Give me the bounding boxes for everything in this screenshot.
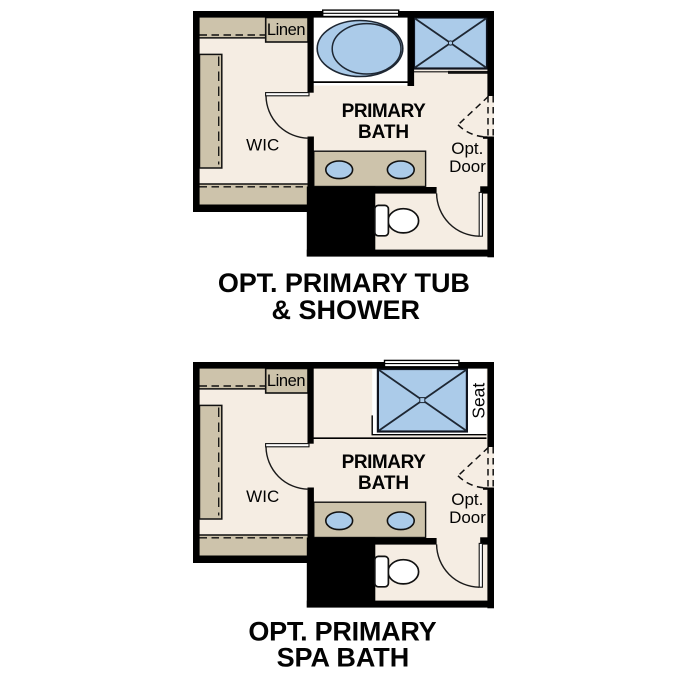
svg-text:WIC: WIC <box>246 487 279 506</box>
svg-text:Linen: Linen <box>267 21 306 39</box>
svg-text:OPT. PRIMARY TUB: OPT. PRIMARY TUB <box>218 268 470 298</box>
svg-text:WIC: WIC <box>246 136 279 155</box>
svg-text:BATH: BATH <box>358 473 409 494</box>
svg-text:BATH: BATH <box>358 122 409 143</box>
svg-text:Linen: Linen <box>267 372 306 390</box>
svg-text:PRIMARY: PRIMARY <box>342 452 427 473</box>
svg-text:Door: Door <box>449 508 486 527</box>
svg-text:Opt.: Opt. <box>451 139 483 158</box>
svg-text:SPA BATH: SPA BATH <box>277 642 410 672</box>
svg-text:& SHOWER: & SHOWER <box>272 295 421 325</box>
svg-text:Opt.: Opt. <box>451 490 483 509</box>
svg-text:Door: Door <box>449 157 486 176</box>
svg-text:Seat: Seat <box>469 383 489 419</box>
svg-text:PRIMARY: PRIMARY <box>342 101 427 122</box>
